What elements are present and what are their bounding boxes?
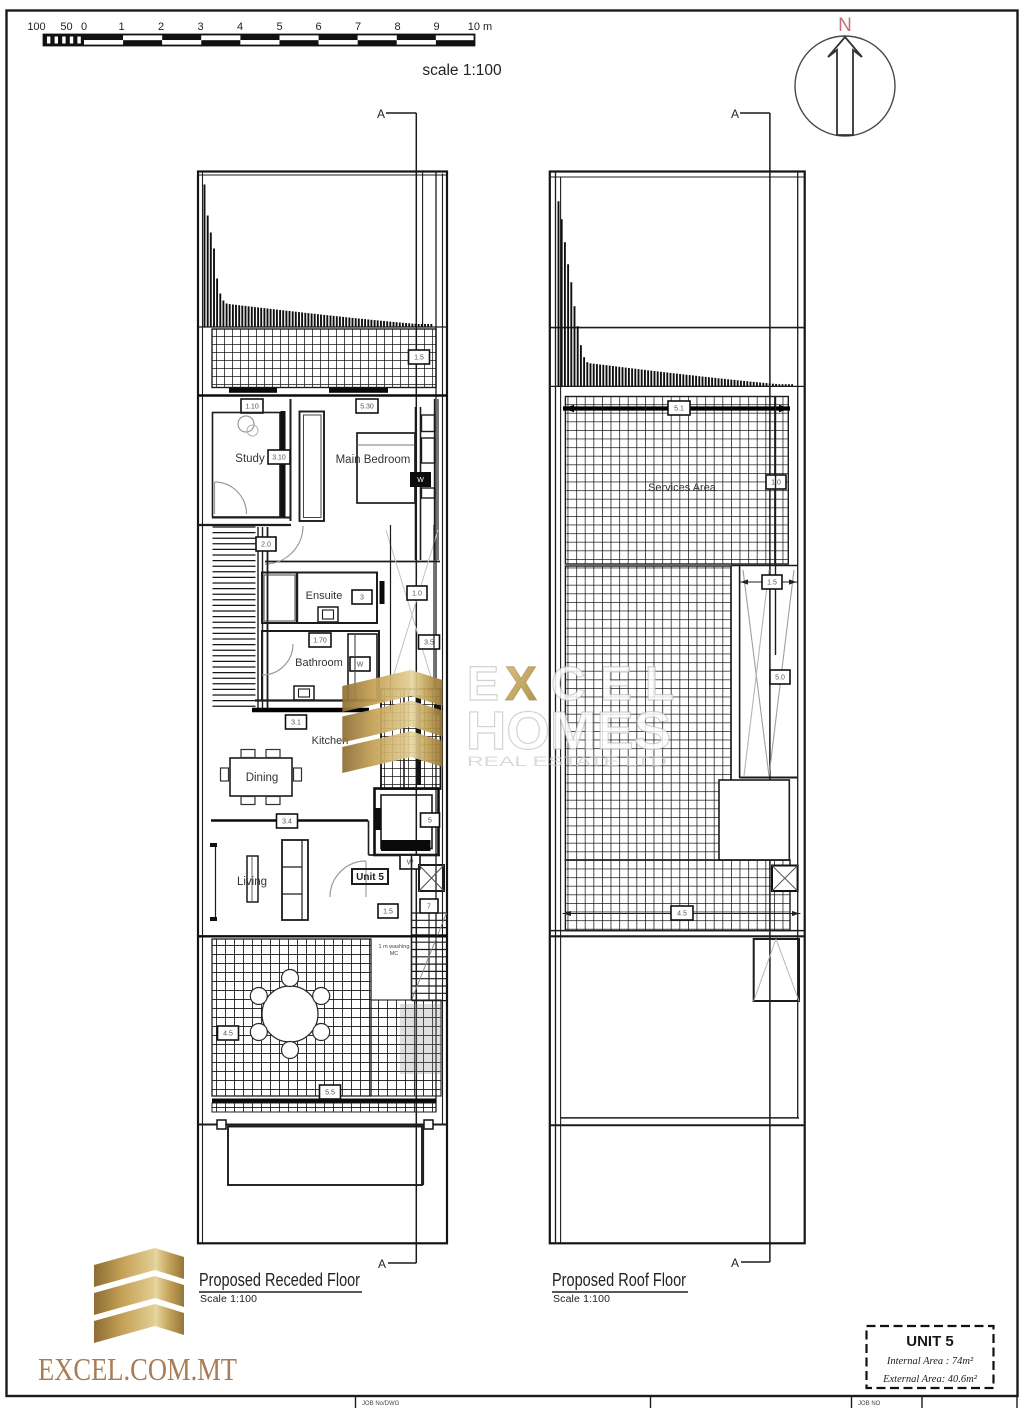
svg-text:Proposed Receded Floor: Proposed Receded Floor xyxy=(199,1269,360,1290)
svg-text:3: 3 xyxy=(197,21,203,33)
svg-text:1.10: 1.10 xyxy=(245,404,259,411)
svg-text:5.5: 5.5 xyxy=(325,1090,335,1097)
svg-text:EXCEL.COM.MT: EXCEL.COM.MT xyxy=(38,1351,237,1387)
svg-text:REAL ESTATE LTD: REAL ESTATE LTD xyxy=(467,754,667,769)
svg-text:Services Area: Services Area xyxy=(648,482,717,494)
svg-text:100: 100 xyxy=(27,21,45,33)
svg-text:5.0: 5.0 xyxy=(775,675,785,682)
svg-text:External Area: 40.6m²: External Area: 40.6m² xyxy=(882,1374,978,1385)
svg-text:3.1: 3.1 xyxy=(291,720,301,727)
svg-text:HOMES: HOMES xyxy=(466,701,671,761)
svg-text:3: 3 xyxy=(360,595,364,602)
svg-text:7: 7 xyxy=(427,904,431,911)
svg-text:4.5: 4.5 xyxy=(223,1031,233,1038)
svg-text:3.5: 3.5 xyxy=(424,640,434,647)
svg-text:UNIT 5: UNIT 5 xyxy=(906,1333,954,1350)
svg-text:A: A xyxy=(731,1256,739,1270)
svg-text:5.30: 5.30 xyxy=(360,404,374,411)
svg-text:9: 9 xyxy=(433,21,439,33)
svg-text:3.10: 3.10 xyxy=(272,455,286,462)
svg-text:A: A xyxy=(377,107,385,121)
svg-text:2: 2 xyxy=(158,21,164,33)
svg-text:0: 0 xyxy=(81,21,87,33)
svg-text:1.70: 1.70 xyxy=(313,638,327,645)
svg-text:MC: MC xyxy=(390,951,399,957)
svg-text:W: W xyxy=(357,662,364,669)
svg-text:5.1: 5.1 xyxy=(674,406,684,413)
svg-text:JOB No/DWG: JOB No/DWG xyxy=(362,1401,400,1407)
svg-text:Bathroom: Bathroom xyxy=(295,657,343,669)
svg-text:7: 7 xyxy=(355,21,361,33)
svg-text:A: A xyxy=(378,1257,386,1271)
svg-text:N: N xyxy=(838,15,852,36)
svg-text:W: W xyxy=(417,477,424,484)
svg-text:1: 1 xyxy=(118,21,124,33)
svg-text:Unit 5: Unit 5 xyxy=(356,872,384,883)
svg-text:8: 8 xyxy=(394,21,400,33)
svg-text:Scale 1:100: Scale 1:100 xyxy=(553,1293,610,1305)
svg-text:scale 1:100: scale 1:100 xyxy=(422,62,502,79)
svg-text:1.0: 1.0 xyxy=(412,591,422,598)
svg-text:10 m: 10 m xyxy=(468,21,492,33)
svg-text:1.5: 1.5 xyxy=(414,355,424,362)
svg-text:Dining: Dining xyxy=(246,772,279,784)
svg-text:50: 50 xyxy=(60,21,72,33)
svg-text:4.5: 4.5 xyxy=(677,911,687,918)
svg-text:A: A xyxy=(731,107,739,121)
svg-text:1.5: 1.5 xyxy=(767,580,777,587)
svg-text:1 m washing: 1 m washing xyxy=(379,944,410,950)
svg-text:Study: Study xyxy=(235,453,265,465)
svg-text:W: W xyxy=(407,860,414,867)
svg-text:6: 6 xyxy=(315,21,321,33)
svg-text:Ensuite: Ensuite xyxy=(306,590,343,602)
svg-text:3.4: 3.4 xyxy=(282,819,292,826)
svg-text:Internal Area : 74m²: Internal Area : 74m² xyxy=(886,1356,974,1367)
svg-text:Proposed Roof Floor: Proposed Roof Floor xyxy=(552,1269,686,1290)
svg-text:1.5: 1.5 xyxy=(383,909,393,916)
svg-text:Scale 1:100: Scale 1:100 xyxy=(200,1293,257,1305)
svg-text:2.0: 2.0 xyxy=(261,542,271,549)
svg-text:4: 4 xyxy=(237,21,243,33)
svg-text:5: 5 xyxy=(276,21,282,33)
svg-text:JOB NO: JOB NO xyxy=(858,1401,881,1407)
svg-text:5: 5 xyxy=(428,818,432,825)
svg-text:Main Bedroom: Main Bedroom xyxy=(336,454,411,466)
